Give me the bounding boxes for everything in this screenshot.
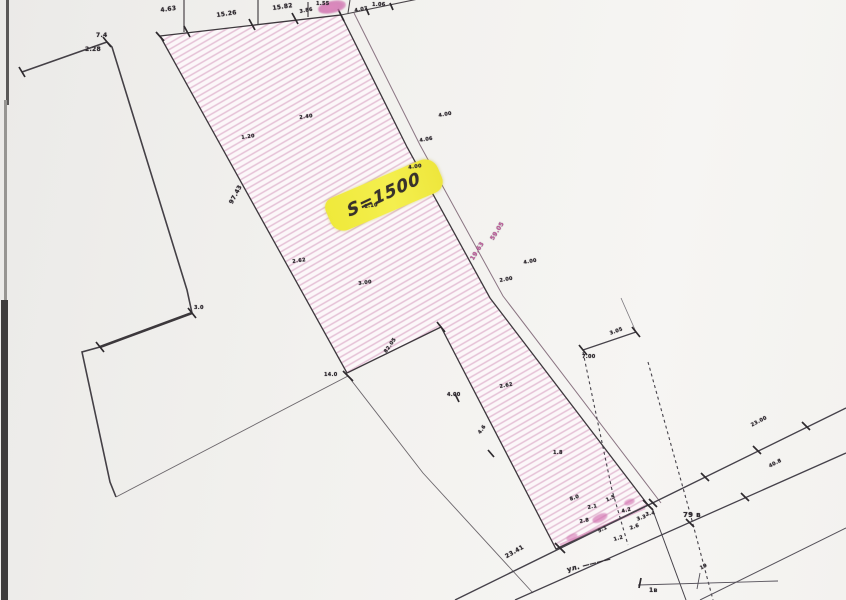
dimension-label: 8.0 [569,494,580,503]
dimension-label: 2.28 [85,46,101,53]
dimension-label: 23.41 [504,544,525,560]
dimension-label: 3.00 [358,279,372,287]
dimension-label: 79 в [683,511,701,519]
dimension-label: 4.63 [160,5,177,14]
dimension-label: 1.55 [316,1,330,7]
dimension-label: 59.05 [489,221,506,242]
dimension-label: 4.00 [447,392,461,398]
dimension-label: 3.4 [645,510,656,518]
dimension-label: 7.4 [96,32,108,39]
dimension-label: 3.0 [194,305,204,311]
cadastral-survey-sketch: S=1500 4.6315.2615.823.861.554.071.067.4… [0,0,846,600]
dimension-label: 4.6 [477,424,488,435]
dimension-label: 2.62 [292,257,306,265]
dimension-label: 1.06 [372,2,386,8]
dimension-label: 82.05 [383,337,398,355]
dimension-label: 7.00 [582,354,596,360]
dimension-label: 3.05 [609,326,624,336]
dimension-label: 2.62 [499,382,513,390]
dimension-label: 2.00 [499,276,513,284]
dimension-label: 40.8 [768,458,783,469]
dimension-labels-layer: 4.6315.2615.823.861.554.071.067.42.2897.… [0,0,846,600]
dimension-label: 4.06 [419,136,433,144]
dimension-label: 1.5 [605,494,616,504]
dimension-label: 1в [649,587,658,594]
dimension-label: 14.0 [324,372,338,378]
dimension-label: 4.2 [621,506,632,514]
dimension-label: 1.8 [553,450,563,456]
dimension-label: 5.1 [597,525,608,535]
dimension-label: 19.63 [469,241,486,262]
dimension-label: 3.86 [299,7,313,15]
dimension-label: 1.20 [241,133,255,141]
dimension-label: 4.00 [438,111,452,119]
dimension-label: 2.6 [629,523,640,532]
dimension-label: ул. ———— [566,555,612,574]
dimension-label: 2.8 [579,517,590,525]
dimension-label: 23.00 [750,415,768,428]
dimension-label: 1.2 [613,534,624,542]
dimension-label: 19 [699,563,708,572]
dimension-label: 2.1 [587,503,598,511]
dimension-label: 4.00 [408,163,422,171]
dimension-label: 4.07 [354,6,368,14]
dimension-label: 4.00 [523,258,537,266]
dimension-label: 97.43 [228,184,244,205]
dimension-label: 15.26 [216,9,237,19]
dimension-label: 15.82 [272,2,293,12]
dimension-label: 2.40 [299,113,313,121]
dimension-label: 1.10 [364,202,378,210]
